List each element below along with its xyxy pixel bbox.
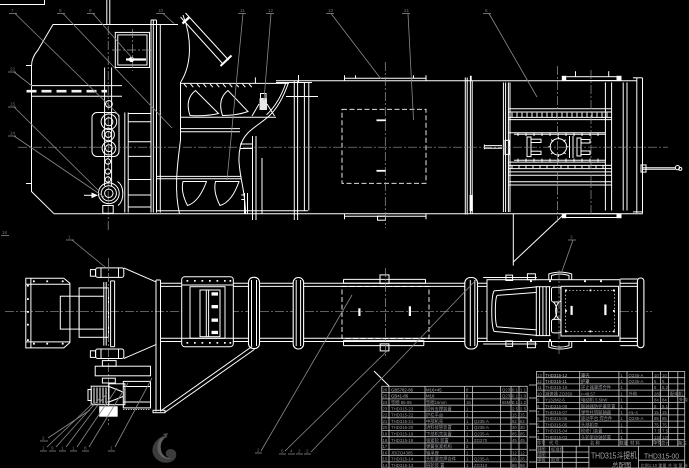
- svg-text:13: 13: [328, 8, 334, 13]
- svg-text:THD315-19: THD315-19: [391, 432, 414, 437]
- svg-text:75: 75: [654, 422, 659, 427]
- svg-text:95: 95: [654, 416, 659, 421]
- svg-text:减速器 ZQ350: 减速器 ZQ350: [545, 390, 573, 397]
- svg-text:Y132M2-6: Y132M2-6: [545, 398, 565, 403]
- svg-text:1.2: 1.2: [520, 400, 527, 405]
- svg-text:15: 15: [512, 413, 517, 418]
- svg-text:16: 16: [466, 400, 471, 405]
- svg-text:5: 5: [281, 449, 284, 454]
- svg-text:THD315-20: THD315-20: [391, 425, 414, 430]
- svg-text:15: 15: [383, 457, 388, 462]
- svg-text:85: 85: [520, 432, 525, 437]
- svg-text:THD315-13: THD315-13: [391, 463, 414, 468]
- svg-text:2: 2: [42, 436, 45, 441]
- svg-text:1: 1: [42, 446, 45, 451]
- svg-text:罩壳: 罩壳: [581, 372, 590, 379]
- svg-text:26: 26: [383, 387, 388, 392]
- svg-text:THD315-05: THD315-05: [545, 422, 568, 427]
- svg-text:9: 9: [89, 8, 92, 13]
- svg-text:24: 24: [383, 400, 388, 405]
- svg-text:回转支撑装置: 回转支撑装置: [426, 405, 452, 412]
- svg-text:45: 45: [512, 438, 517, 443]
- svg-text:M16×45: M16×45: [426, 387, 442, 392]
- svg-text:15: 15: [520, 413, 525, 418]
- svg-text:THD315-22: THD315-22: [391, 413, 414, 418]
- svg-text:12: 12: [537, 379, 542, 384]
- svg-text:弹簧张紧机构: 弹簧张紧机构: [426, 443, 452, 450]
- svg-text:THD315-11: THD315-11: [545, 379, 568, 384]
- svg-text:1: 1: [68, 235, 71, 240]
- svg-text:12: 12: [512, 450, 517, 455]
- svg-text:7.5: 7.5: [654, 429, 661, 434]
- svg-text:GB41-86: GB41-86: [391, 394, 409, 399]
- svg-text:链轮装 置: 链轮装 置: [426, 462, 445, 468]
- svg-text:材 料: 材 料: [630, 440, 640, 447]
- svg-text:10: 10: [654, 373, 659, 378]
- svg-text:280: 280: [654, 391, 662, 396]
- svg-text:THD315-23: THD315-23: [391, 406, 414, 411]
- svg-text:14: 14: [383, 463, 388, 468]
- svg-text:84: 84: [654, 398, 659, 403]
- svg-text:驱动平台 焊合件: 驱动平台 焊合件: [581, 415, 613, 422]
- svg-text:Q235-A: Q235-A: [474, 432, 489, 437]
- svg-text:2: 2: [298, 449, 301, 454]
- svg-text:电动机 5.5kW: 电动机 5.5kW: [581, 397, 608, 404]
- svg-text:逆止器罩焊合件: 逆止器罩焊合件: [581, 384, 612, 391]
- svg-text:8: 8: [84, 446, 87, 451]
- svg-text:THD315-07: THD315-07: [545, 410, 568, 415]
- svg-text:16: 16: [2, 230, 8, 235]
- svg-text:8: 8: [59, 8, 62, 13]
- svg-text:1: 1: [72, 446, 75, 451]
- svg-text:备注: 备注: [678, 440, 687, 447]
- svg-text:16: 16: [383, 450, 388, 455]
- svg-text:审核: 审核: [537, 457, 546, 464]
- svg-text:轴承座: 轴承座: [426, 449, 440, 456]
- svg-text:进料接管装置: 进料接管装置: [426, 424, 452, 431]
- svg-text:护栏平台: 护栏平台: [426, 412, 443, 419]
- svg-text:23: 23: [383, 406, 388, 411]
- svg-text:Q235-A: Q235-A: [474, 425, 489, 430]
- svg-text:11: 11: [240, 8, 245, 13]
- svg-text:Q235-A: Q235-A: [474, 457, 489, 462]
- svg-text:THD315-14: THD315-14: [391, 457, 414, 462]
- svg-text:代 号: 代 号: [549, 440, 559, 447]
- svg-text:5.2: 5.2: [662, 385, 669, 390]
- svg-text:THD315-10: THD315-10: [545, 385, 568, 390]
- svg-text:4: 4: [290, 449, 293, 454]
- svg-text:THD315-04: THD315-04: [545, 429, 568, 434]
- svg-text:9: 9: [51, 446, 54, 451]
- svg-text:重 量: 重 量: [653, 437, 660, 442]
- svg-text:ZG270: ZG270: [474, 438, 488, 443]
- svg-text:GB5782-86: GB5782-86: [391, 387, 414, 392]
- svg-text:45: 45: [520, 438, 525, 443]
- svg-text:ZG310: ZG310: [474, 463, 488, 468]
- svg-text:THD315-00: THD315-00: [644, 452, 679, 461]
- svg-text:26: 26: [512, 457, 517, 462]
- svg-text:2.5: 2.5: [520, 406, 527, 411]
- svg-text:垫圈 85-85: 垫圈 85-85: [391, 399, 412, 406]
- svg-text:19: 19: [383, 432, 388, 437]
- svg-text:Q235-A: Q235-A: [629, 379, 644, 384]
- svg-text:头轮罩壳焊合件: 头轮罩壳焊合件: [426, 456, 457, 463]
- svg-text:JB/ZQ4385: JB/ZQ4385: [391, 450, 413, 455]
- svg-text:12: 12: [268, 8, 274, 13]
- svg-text:3: 3: [570, 235, 573, 240]
- svg-text:THD315-08: THD315-08: [545, 404, 568, 409]
- svg-text:THD315-18: THD315-18: [391, 438, 414, 443]
- svg-text:批准: 批准: [551, 457, 560, 464]
- svg-text:21: 21: [383, 419, 388, 424]
- svg-text:M16: M16: [426, 394, 435, 399]
- svg-text:95: 95: [662, 416, 667, 421]
- svg-text:外购: 外购: [629, 390, 638, 397]
- svg-text:85: 85: [512, 432, 517, 437]
- svg-text:88: 88: [520, 463, 525, 468]
- svg-text:比例1:10 重量 共 张 第 张: 比例1:10 重量 共 张 第 张: [641, 462, 689, 468]
- svg-text:30: 30: [512, 425, 517, 430]
- svg-text:1.1: 1.1: [520, 387, 527, 392]
- svg-text:7.5: 7.5: [662, 429, 669, 434]
- svg-text:62: 62: [520, 419, 525, 424]
- svg-text:10: 10: [662, 373, 667, 378]
- svg-text:2.5: 2.5: [512, 406, 519, 411]
- svg-text:13: 13: [537, 373, 542, 378]
- svg-text:名 称: 名 称: [590, 440, 600, 447]
- svg-text:THD315-06: THD315-06: [545, 416, 568, 421]
- svg-text:总配图: 总配图: [612, 460, 632, 468]
- svg-text:THD315-03: THD315-03: [545, 435, 568, 440]
- svg-text:12: 12: [520, 450, 525, 455]
- svg-text:护罩: 护罩: [581, 378, 590, 385]
- svg-text:88: 88: [512, 463, 517, 468]
- svg-text:配电机: 配电机: [670, 390, 684, 397]
- svg-text:25: 25: [383, 394, 388, 399]
- svg-text:下部机壳装置: 下部机壳装置: [426, 431, 452, 438]
- svg-text:0.1: 0.1: [512, 387, 519, 392]
- svg-text:0.1: 0.1: [512, 400, 519, 405]
- svg-text:THD315-21: THD315-21: [391, 419, 414, 424]
- svg-text:18: 18: [383, 438, 388, 443]
- svg-text:120: 120: [662, 435, 670, 440]
- svg-text:84: 84: [662, 398, 667, 403]
- svg-text:6: 6: [485, 8, 488, 13]
- svg-text:22: 22: [383, 413, 388, 418]
- svg-text:Q235-A: Q235-A: [474, 419, 489, 424]
- svg-text:21: 21: [404, 8, 410, 13]
- svg-text:THD315-12: THD315-12: [545, 373, 568, 378]
- svg-text:20: 20: [383, 425, 388, 430]
- svg-text:总计: 总计: [661, 440, 670, 447]
- svg-text:外购: 外购: [679, 397, 688, 404]
- svg-text:序号: 序号: [537, 440, 546, 447]
- svg-text:7: 7: [11, 8, 14, 13]
- svg-text:11: 11: [537, 385, 542, 390]
- svg-text:1: 1: [110, 446, 113, 451]
- svg-text:26: 26: [520, 457, 525, 462]
- svg-text:标准化: 标准化: [551, 446, 565, 453]
- svg-text:HL-4: HL-4: [629, 410, 639, 415]
- svg-text:0.1: 0.1: [512, 394, 519, 399]
- svg-text:8.1: 8.1: [662, 404, 669, 409]
- svg-text:17: 17: [383, 444, 388, 449]
- svg-text:14: 14: [10, 131, 16, 136]
- svg-text:中部机壳: 中部机壳: [426, 418, 444, 425]
- svg-text:15: 15: [654, 410, 659, 415]
- svg-text:联轴器防护罩装置: 联轴器防护罩装置: [581, 403, 616, 410]
- svg-text:2: 2: [257, 448, 260, 453]
- svg-text:Q235-A: Q235-A: [629, 373, 644, 378]
- svg-text:头部机壳: 头部机壳: [581, 421, 599, 428]
- svg-text:1.0: 1.0: [520, 394, 527, 399]
- svg-text:10: 10: [537, 391, 542, 396]
- svg-text:22: 22: [10, 67, 16, 72]
- svg-text:Q235-A: Q235-A: [629, 416, 644, 421]
- svg-text:检修门装置: 检修门装置: [581, 428, 603, 435]
- svg-text:1: 1: [61, 446, 64, 451]
- svg-text:15: 15: [662, 410, 667, 415]
- svg-text:62: 62: [512, 419, 517, 424]
- svg-text:15: 15: [10, 102, 16, 107]
- svg-text:垫圈16mm: 垫圈16mm: [426, 399, 447, 406]
- svg-text:数量: 数量: [620, 440, 629, 447]
- svg-text:10: 10: [158, 8, 164, 13]
- svg-text:张紧轮 装置: 张紧轮 装置: [426, 437, 449, 444]
- svg-text:i=48.57: i=48.57: [581, 391, 596, 396]
- svg-text:30: 30: [520, 425, 525, 430]
- svg-text:2: 2: [306, 449, 309, 454]
- svg-text:弹性柱销联轴器: 弹性柱销联轴器: [581, 409, 612, 416]
- svg-text:THD315斗提机: THD315斗提机: [591, 451, 637, 461]
- svg-text:75: 75: [662, 422, 667, 427]
